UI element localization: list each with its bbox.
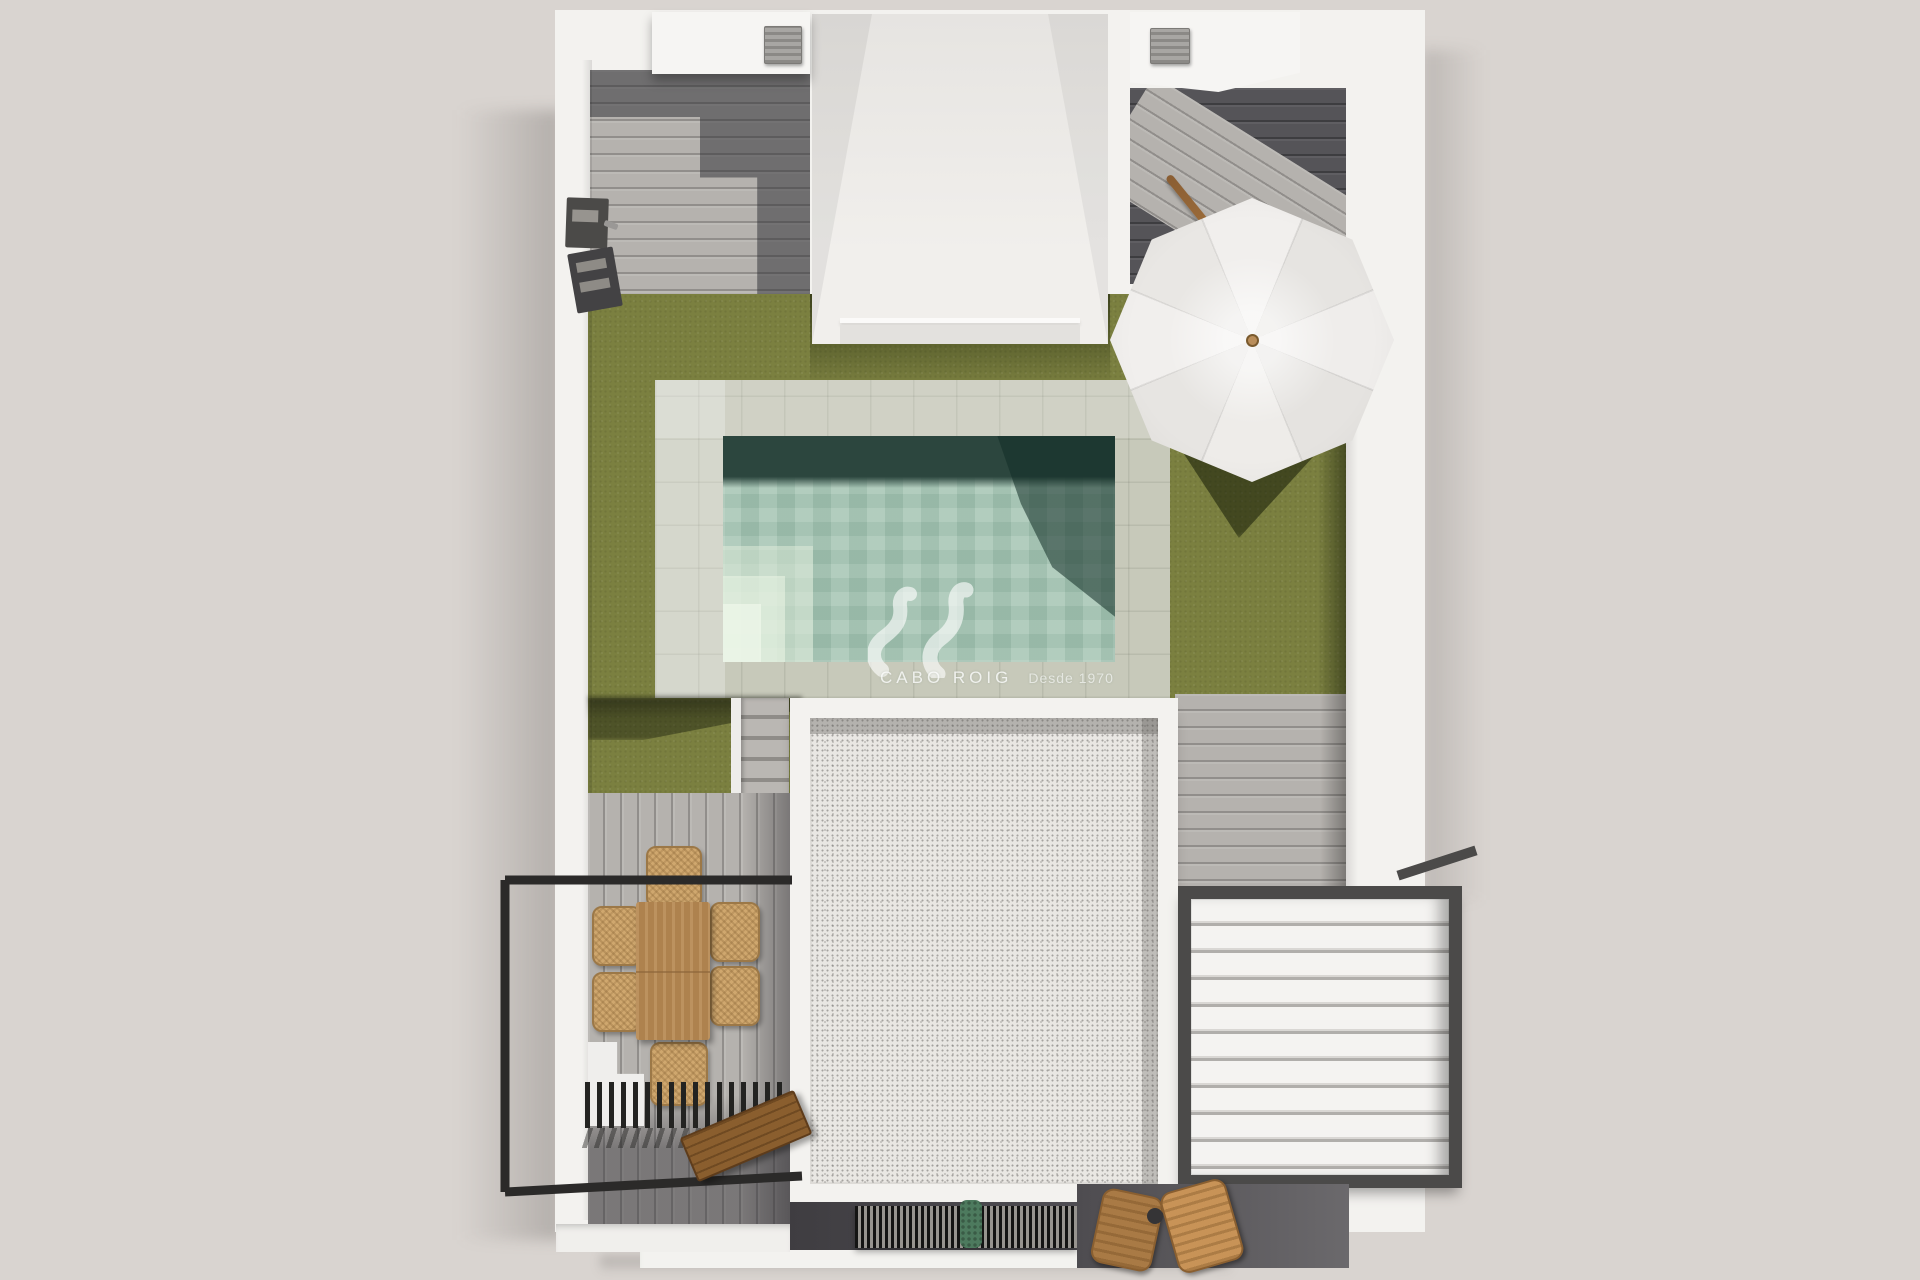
- courtyard-wall-right-shade: [1048, 14, 1108, 344]
- terrace-railing: [495, 862, 825, 1207]
- courtyard-floor: [840, 325, 1080, 344]
- watermark-text: CABO ROIG Desde 1970: [880, 668, 1220, 692]
- courtyard-wall-left-shade: [812, 14, 872, 344]
- terrace-front-wall: [556, 1224, 790, 1252]
- potted-plant: [960, 1200, 982, 1248]
- courtyard-lightwell: [812, 14, 1108, 344]
- watermark-logo-icon: [868, 582, 1013, 678]
- ac-unit-right: [1150, 28, 1190, 64]
- barbecue-unit-top: [565, 197, 609, 248]
- watermark-tagline: Desde 1970: [1028, 670, 1114, 686]
- pergola-louvers: [1191, 899, 1449, 1175]
- roof-gravel-field: [810, 718, 1158, 1184]
- ac-unit-left: [764, 26, 802, 64]
- courtyard-railing: [840, 318, 1080, 323]
- stairs-stringer: [731, 698, 741, 804]
- pool-step-3: [723, 604, 761, 662]
- render-canvas: CABO ROIG Desde 1970: [0, 0, 1920, 1280]
- roof-gravel-band-top: [810, 718, 1158, 734]
- side-table: [1147, 1208, 1163, 1224]
- garden-stairs: [741, 698, 789, 804]
- parasol-knob: [1246, 334, 1259, 347]
- pool-coping-top: [655, 380, 1170, 438]
- gravel-flat-roof: [790, 698, 1178, 1204]
- watermark-brand: CABO ROIG: [880, 668, 1012, 688]
- deck-right-shadow: [1320, 694, 1346, 890]
- louvered-pergola-roof: [1178, 886, 1462, 1188]
- building-shadow-right: [1422, 50, 1484, 900]
- roof-gravel-band-right: [1142, 718, 1158, 1184]
- parasol: [1110, 198, 1394, 482]
